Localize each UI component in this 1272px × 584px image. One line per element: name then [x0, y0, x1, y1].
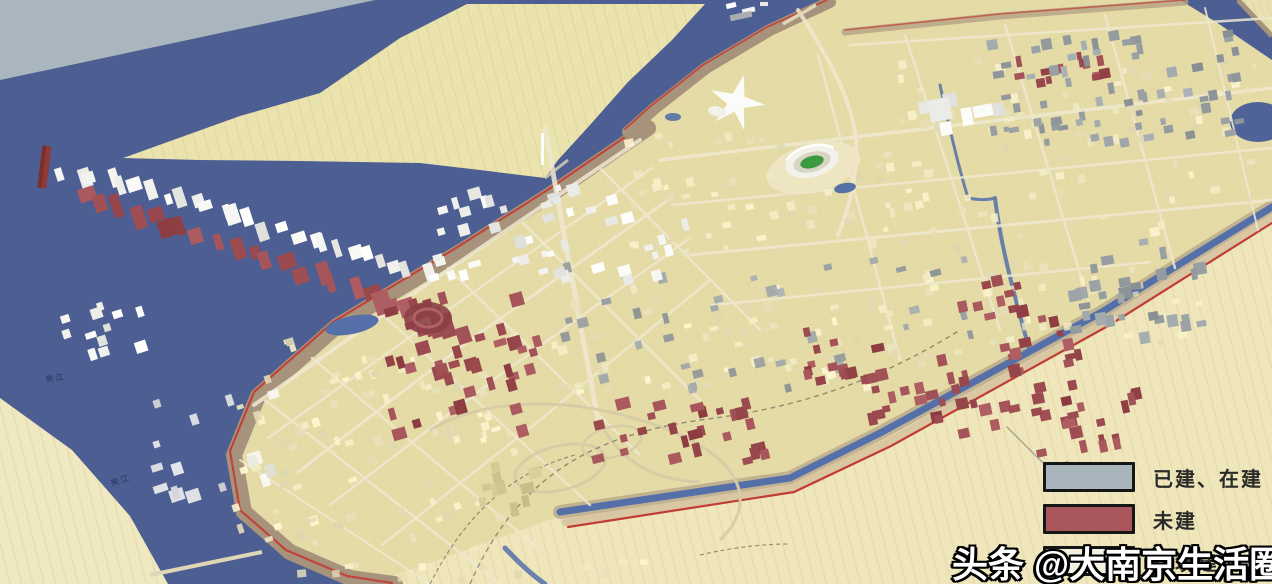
city-planning-aerial-map: 夹江 夹江 已建、在建 未建 环境建筑 头条 @大南京生活圈	[0, 0, 1272, 584]
legend-label-built: 已建、在建	[1153, 463, 1263, 492]
pond-small	[665, 113, 681, 121]
legend-item-built: 已建、在建	[1043, 462, 1263, 492]
legend-swatch-built	[1043, 462, 1135, 492]
legend-swatch-unbuilt	[1043, 504, 1135, 534]
legend-item-unbuilt: 未建	[1043, 504, 1197, 534]
obelisk	[541, 133, 544, 165]
watermark-text: 头条 @大南京生活圈	[952, 536, 1272, 584]
legend-label-unbuilt: 未建	[1153, 505, 1197, 534]
red-complex	[404, 302, 452, 334]
